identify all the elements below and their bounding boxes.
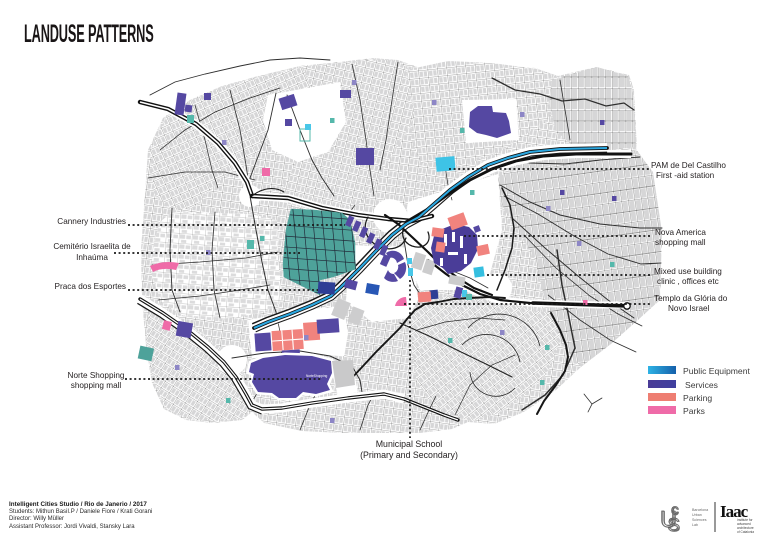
svg-text:PAM de Del Castilho: PAM de Del Castilho xyxy=(651,161,726,170)
svg-text:Norte Shopping: Norte Shopping xyxy=(68,371,125,380)
svg-text:NorteShopping: NorteShopping xyxy=(306,374,327,378)
svg-text:Inhaúma: Inhaúma xyxy=(76,253,108,262)
svg-text:Novo Israel: Novo Israel xyxy=(668,304,710,313)
svg-text:(Primary and Secondary): (Primary and Secondary) xyxy=(360,450,458,460)
svg-text:First -aid station: First -aid station xyxy=(656,171,715,180)
svg-text:Cannery Industries: Cannery Industries xyxy=(57,217,126,226)
svg-text:of Catalonia: of Catalonia xyxy=(737,530,754,534)
svg-text:shopping mall: shopping mall xyxy=(655,238,706,247)
svg-text:Templo da Glória do: Templo da Glória do xyxy=(654,294,728,303)
svg-text:S: S xyxy=(668,514,680,535)
svg-text:Cemitério Israelita de: Cemitério Israelita de xyxy=(53,242,131,251)
svg-text:Nova America: Nova America xyxy=(655,228,706,237)
svg-text:Services: Services xyxy=(685,380,718,390)
svg-text:Public Equipment: Public Equipment xyxy=(683,366,750,376)
svg-text:clinic , offices etc: clinic , offices etc xyxy=(657,277,719,286)
svg-text:Sciences: Sciences xyxy=(692,518,707,522)
svg-text:Urban: Urban xyxy=(692,513,702,517)
svg-text:Barcelona: Barcelona xyxy=(692,508,708,512)
svg-text:shopping mall: shopping mall xyxy=(71,381,122,390)
svg-text:Mixed use building: Mixed use building xyxy=(654,267,722,276)
svg-text:Praca dos Esportes: Praca dos Esportes xyxy=(55,282,126,291)
svg-text:Lab: Lab xyxy=(692,523,698,527)
svg-text:Municipal School: Municipal School xyxy=(376,439,443,449)
svg-text:Parking: Parking xyxy=(683,393,712,403)
svg-text:Parks: Parks xyxy=(683,406,705,416)
